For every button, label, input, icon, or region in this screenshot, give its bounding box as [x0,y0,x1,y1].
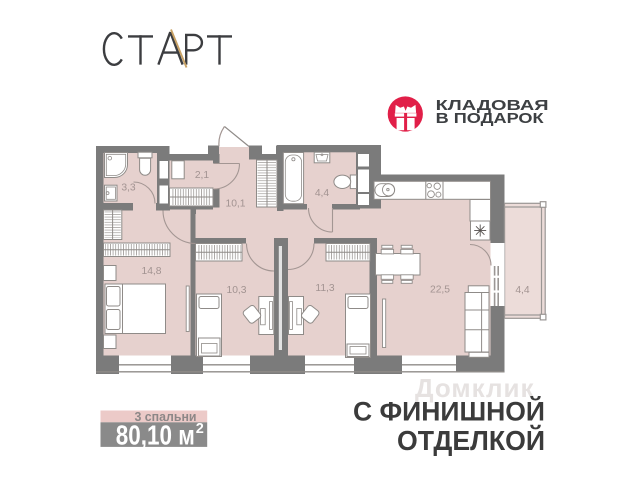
svg-text:С ФИНИШНОЙ: С ФИНИШНОЙ [353,397,545,427]
svg-text:ОТДЕЛКОЙ: ОТДЕЛКОЙ [397,425,545,456]
svg-text:2: 2 [196,421,204,437]
svg-text:80,10 м: 80,10 м [116,419,195,450]
